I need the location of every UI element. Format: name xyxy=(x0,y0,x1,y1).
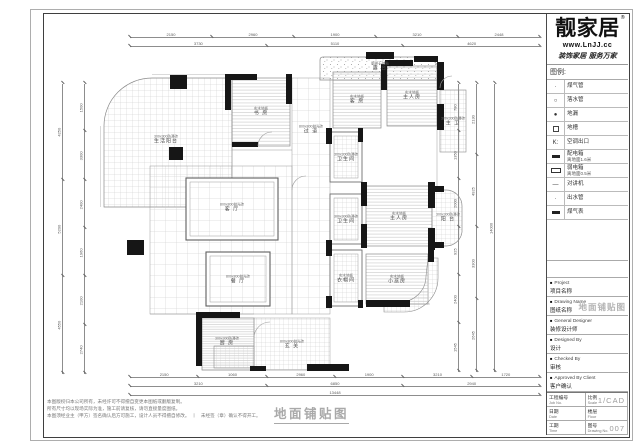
dim-value: 1960 xyxy=(79,229,84,277)
legend-header: 图例: xyxy=(547,65,628,80)
legend-row: 弱电箱离地面0.5米 xyxy=(547,164,628,178)
dim-value: 2645 xyxy=(471,300,476,372)
bar-open-icon xyxy=(547,164,565,177)
legend-label: 弱电箱离地面0.5米 xyxy=(565,165,591,177)
dim-value: 925 xyxy=(453,228,458,276)
dim-value: 2100 xyxy=(79,277,84,325)
brand-website: www.LnJJ.cc xyxy=(550,42,625,49)
registered-mark-icon: ® xyxy=(620,16,626,21)
table-cell-cn: 工期 xyxy=(549,422,583,429)
dim-value: 1900 xyxy=(335,373,403,377)
dimension-chain: 150033002400196021002740 xyxy=(84,84,91,374)
titleblock-empty-row xyxy=(547,261,628,278)
legend-label: 落水管 xyxy=(565,97,584,104)
table-cell: 日期Date xyxy=(547,407,586,421)
room-label: 实木地板客 房 xyxy=(350,95,364,106)
dim-value: 1720 xyxy=(472,373,540,377)
room-name: 厨 房 xyxy=(215,341,239,347)
table-cell-cn: 工程编号 xyxy=(549,394,583,401)
dim-value: 2960 xyxy=(267,373,335,377)
room-label: 300x300防滑砖卫生间 xyxy=(334,215,358,226)
room-label: 鹅卵石铺贴露 台 xyxy=(371,62,389,73)
dim-value: 4925 xyxy=(471,156,476,228)
dim-value: 2150 xyxy=(130,373,198,377)
legend-row: ·出水管 xyxy=(547,192,628,206)
titleblock-field: Checked By审核 xyxy=(547,354,628,373)
dim-value: 4250 xyxy=(57,84,62,181)
dim-value: 5200 xyxy=(57,181,62,278)
room-name: 生活阳台 xyxy=(154,139,178,145)
legend-list: ·煤气管○落水管●地漏地槽K:空调出口配电箱离地面1.6米弱电箱离地面0.5米—… xyxy=(547,80,628,220)
legend-row: 地槽 xyxy=(547,122,628,136)
bar-filled-icon xyxy=(547,150,565,163)
legend-label: 煤气表 xyxy=(565,209,584,216)
brand-logo: 靓家居® www.LnJJ.cc 装饰家居 服务万家 xyxy=(547,14,628,65)
room-label: 800x800抛光砖客 厅 xyxy=(220,203,244,214)
titleblock-fields: Project项目名称Drawing Name图纸名称地面铺贴图General … xyxy=(547,278,628,392)
legend-row: ●地漏 xyxy=(547,108,628,122)
legend-row: ·煤气管 xyxy=(547,80,628,94)
table-cell: 工程编号Job No. xyxy=(547,393,586,407)
table-cell: 楼层Floor xyxy=(586,407,628,421)
table-cell: 工期Time xyxy=(547,421,586,435)
dim-value: 3300 xyxy=(79,132,84,180)
room-name: 过 道 xyxy=(299,129,323,135)
legend-row: —对讲机 xyxy=(547,178,628,192)
room-label: 300x300防滑砖生活阳台 xyxy=(154,135,178,146)
legend-label: 配电箱离地面1.6米 xyxy=(565,151,591,163)
room-label: 800x800抛光砖餐 厅 xyxy=(226,275,250,286)
titleblock-empty-row xyxy=(547,220,628,261)
text-k-icon: K: xyxy=(547,136,565,149)
bar-filled-icon xyxy=(547,206,565,219)
drawing-name-stamp: 地面铺贴图 xyxy=(578,301,626,313)
titleblock-field: Approved By Client客户确认 xyxy=(547,373,628,392)
bar-open-icon xyxy=(551,168,561,174)
field-label-cn: 设计 xyxy=(550,344,625,352)
room-name: 阳 台 xyxy=(436,217,460,223)
room-label: 实木地板书 房 xyxy=(254,107,268,118)
field-label-cn: 装修设计师 xyxy=(550,325,625,333)
table-cell-en: Date xyxy=(549,415,583,419)
room-name: 客 厅 xyxy=(220,207,244,213)
room-name: 小孩房 xyxy=(388,279,406,285)
room-name: 主人房 xyxy=(390,216,408,222)
room-label: 300x300防滑砖卫生间 xyxy=(334,153,358,164)
legend-label: 地漏 xyxy=(565,111,578,118)
dim-value: 1500 xyxy=(79,84,84,132)
legend-label: 空调出口 xyxy=(565,139,589,146)
legend-sublabel: 离地面1.6米 xyxy=(567,157,591,162)
dimension-chain: 373051104620 xyxy=(130,46,540,53)
dash-icon: — xyxy=(547,178,565,191)
dim-value: 2400 xyxy=(453,276,458,324)
room-label: 实木地板主人房 xyxy=(403,91,421,102)
legend-label: 煤气管 xyxy=(565,83,584,90)
dot-small-icon: · xyxy=(547,80,565,93)
dot-icon: ● xyxy=(547,108,565,121)
room-label: 300x300防滑砖阳 台 xyxy=(436,213,460,224)
dim-value: 3300 xyxy=(471,228,476,300)
room-name: 客 房 xyxy=(350,99,364,105)
table-cell-cn: 楼层 xyxy=(588,408,625,415)
titleblock-field: Project项目名称 xyxy=(547,278,628,297)
brand-name: 靓家居® xyxy=(555,18,620,39)
room-name: 主人房 xyxy=(403,95,421,101)
legend-label: 对讲机 xyxy=(565,181,584,188)
dim-value: 2400 xyxy=(79,181,84,229)
titleblock-field: Drawing Name图纸名称地面铺贴图 xyxy=(547,297,628,316)
room-label: 800x800抛光砖过 道 xyxy=(299,125,323,136)
legend-row: 配电箱离地面1.6米 xyxy=(547,150,628,164)
room-name: 卫生间 xyxy=(334,219,358,225)
dim-value: 1350 xyxy=(453,132,458,180)
room-name: 玄 关 xyxy=(280,344,304,350)
dim-value: 3210 xyxy=(376,33,458,37)
room-label: 300x300防滑砖厨 房 xyxy=(215,337,239,348)
dimension-chain: 425052004550 xyxy=(62,84,69,374)
titleblock-field: Designed By设计 xyxy=(547,335,628,354)
titleblock-field: General Designer装修设计师 xyxy=(547,316,628,335)
dim-value: 2448 xyxy=(458,33,540,37)
table-cell: 比例Scale1/CAD xyxy=(586,393,628,407)
drawing-sheet: 2150296019003210244837305110462042505200… xyxy=(0,0,640,448)
table-cell-cn: 日期 xyxy=(549,408,583,415)
bar-filled-icon xyxy=(552,155,560,159)
dim-value: 14000 xyxy=(489,84,494,372)
circle-icon: ○ xyxy=(547,94,565,107)
table-cell-en: Time xyxy=(549,429,583,433)
dim-value: 2130 xyxy=(471,84,476,156)
field-label-cn: 审核 xyxy=(550,363,625,371)
dim-value: 1900 xyxy=(294,33,376,37)
room-label: 800x800抛光砖玄 关 xyxy=(280,340,304,351)
titleblock-table: 工程编号Job No.比例Scale1/CAD日期Date楼层Floor工期Ti… xyxy=(547,392,628,435)
room-name: 餐 厅 xyxy=(226,279,250,285)
room-name: 主 卫 xyxy=(441,121,465,127)
dim-value: 3210 xyxy=(403,373,471,377)
dim-value: 4550 xyxy=(57,277,62,374)
room-name: 露 台 xyxy=(371,66,389,72)
table-cell-value: 007 xyxy=(609,424,625,433)
floor-plan-drawing xyxy=(44,14,545,435)
dim-value: 2150 xyxy=(130,33,212,37)
dimension-chain: 14000 xyxy=(494,84,501,372)
room-label: 实木地板主人房 xyxy=(390,212,408,223)
room-label: 实木地板小孩房 xyxy=(388,275,406,286)
field-label-en: Project xyxy=(550,280,625,286)
legend-sublabel: 离地面0.5米 xyxy=(567,171,591,176)
dim-value: 13448 xyxy=(130,391,540,395)
room-label: 300x300防滑砖主 卫 xyxy=(441,117,465,128)
brand-slogan: 装饰家居 服务万家 xyxy=(550,51,625,61)
dim-value: 2960 xyxy=(212,33,294,37)
room-name: 衣帽间 xyxy=(337,278,355,284)
dim-value: 1060 xyxy=(198,373,266,377)
dim-value: 2740 xyxy=(79,326,84,374)
table-cell-en: Job No. xyxy=(549,401,583,405)
field-label-en: Approved By Client xyxy=(550,375,625,381)
legend-row: ○落水管 xyxy=(547,94,628,108)
field-label-cn: 项目名称 xyxy=(550,287,625,295)
field-label-cn: 客户确认 xyxy=(550,382,625,390)
legend-row: 煤气表 xyxy=(547,206,628,220)
corridor xyxy=(292,78,330,314)
bar-filled-icon xyxy=(552,211,560,215)
dim-value: 1545 xyxy=(453,324,458,372)
plan-title: 地面铺贴图 xyxy=(274,403,349,424)
legend-row: K:空调出口 xyxy=(547,136,628,150)
dim-value: 3210 xyxy=(130,382,267,386)
table-cell-en: Floor xyxy=(588,415,625,419)
dim-value: 5110 xyxy=(267,42,404,46)
legend-label: 地槽 xyxy=(565,125,578,132)
room-label: 实木地板衣帽间 xyxy=(337,274,355,285)
dot-small-icon: · xyxy=(547,192,565,205)
field-label-en: Designed By xyxy=(550,337,625,343)
dim-value: 4620 xyxy=(403,42,540,46)
field-label-en: General Designer xyxy=(550,318,625,324)
field-label-en: Checked By xyxy=(550,356,625,362)
dimension-chain: 2130492533002645 xyxy=(476,84,483,372)
table-cell-value: 1/CAD xyxy=(598,396,625,405)
square-icon xyxy=(547,122,565,135)
dim-value: 6850 xyxy=(267,382,404,386)
dim-value: 3730 xyxy=(130,42,267,46)
legend-label: 出水管 xyxy=(565,195,584,202)
room-name: 卫生间 xyxy=(334,157,358,163)
title-block: 靓家居® www.LnJJ.cc 装饰家居 服务万家 图例: ·煤气管○落水管●… xyxy=(546,14,628,435)
dim-value: 2940 xyxy=(403,382,540,386)
room-name: 书 房 xyxy=(254,111,268,117)
square-icon xyxy=(553,126,559,132)
table-cell: 图号Drawing No.007 xyxy=(586,421,628,435)
